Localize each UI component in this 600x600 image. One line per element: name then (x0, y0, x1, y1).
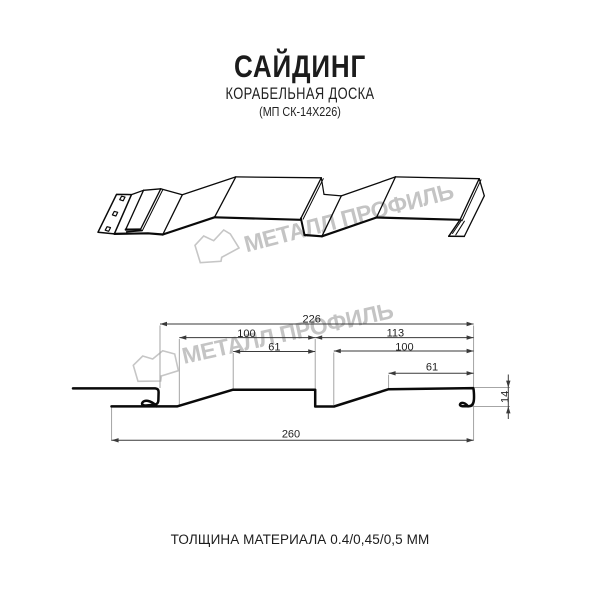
svg-text:226: 226 (303, 313, 321, 325)
svg-text:100: 100 (237, 328, 255, 340)
svg-text:61: 61 (426, 362, 438, 374)
svg-text:61: 61 (268, 342, 280, 354)
svg-text:МЕТАЛЛ ПРОФИЛЬ: МЕТАЛЛ ПРОФИЛЬ (179, 297, 395, 369)
svg-text:260: 260 (282, 429, 300, 441)
svg-text:100: 100 (395, 341, 413, 353)
svg-text:113: 113 (387, 328, 405, 340)
svg-text:МЕТАЛЛ ПРОФИЛЬ: МЕТАЛЛ ПРОФИЛЬ (241, 178, 456, 257)
svg-text:14: 14 (500, 391, 512, 403)
